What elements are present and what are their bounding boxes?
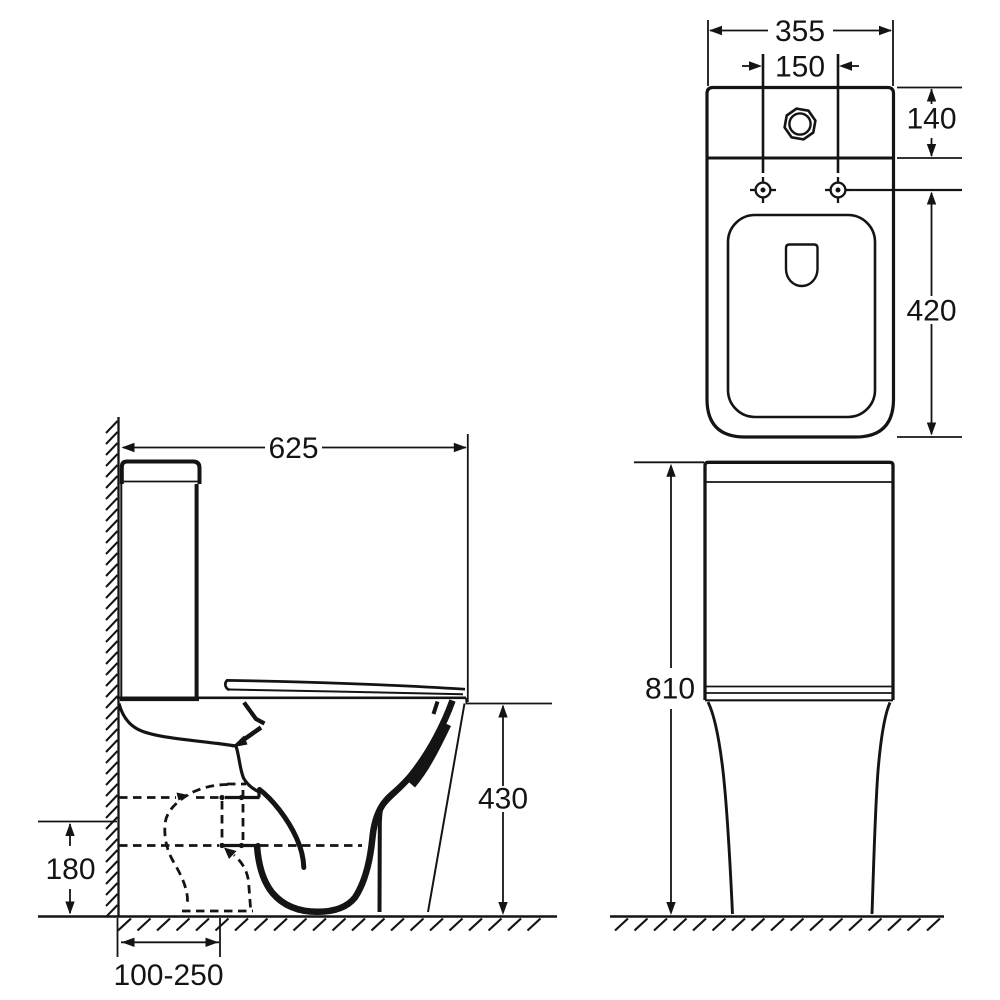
svg-text:355: 355 — [775, 15, 825, 48]
svg-text:150: 150 — [775, 51, 825, 84]
svg-text:810: 810 — [645, 673, 695, 706]
svg-text:180: 180 — [45, 853, 95, 886]
svg-text:430: 430 — [478, 783, 528, 816]
svg-text:420: 420 — [906, 295, 956, 328]
svg-text:625: 625 — [268, 432, 318, 465]
svg-text:100-250: 100-250 — [113, 959, 223, 992]
svg-text:140: 140 — [906, 103, 956, 136]
